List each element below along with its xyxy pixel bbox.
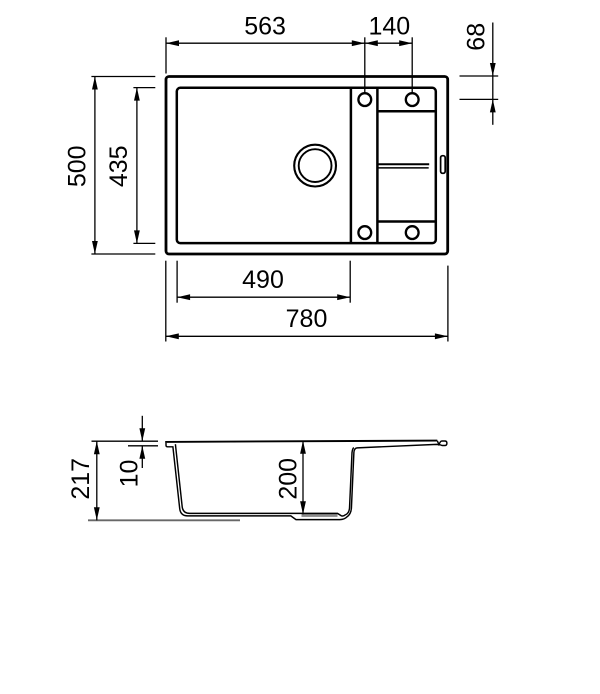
- svg-text:780: 780: [286, 305, 328, 333]
- svg-text:200: 200: [275, 458, 303, 500]
- svg-text:500: 500: [63, 145, 91, 187]
- svg-text:563: 563: [244, 13, 286, 41]
- svg-text:140: 140: [368, 13, 410, 41]
- svg-text:217: 217: [67, 458, 95, 500]
- svg-text:10: 10: [115, 460, 143, 488]
- svg-text:68: 68: [462, 23, 490, 51]
- svg-text:435: 435: [105, 145, 133, 187]
- svg-text:490: 490: [242, 266, 284, 294]
